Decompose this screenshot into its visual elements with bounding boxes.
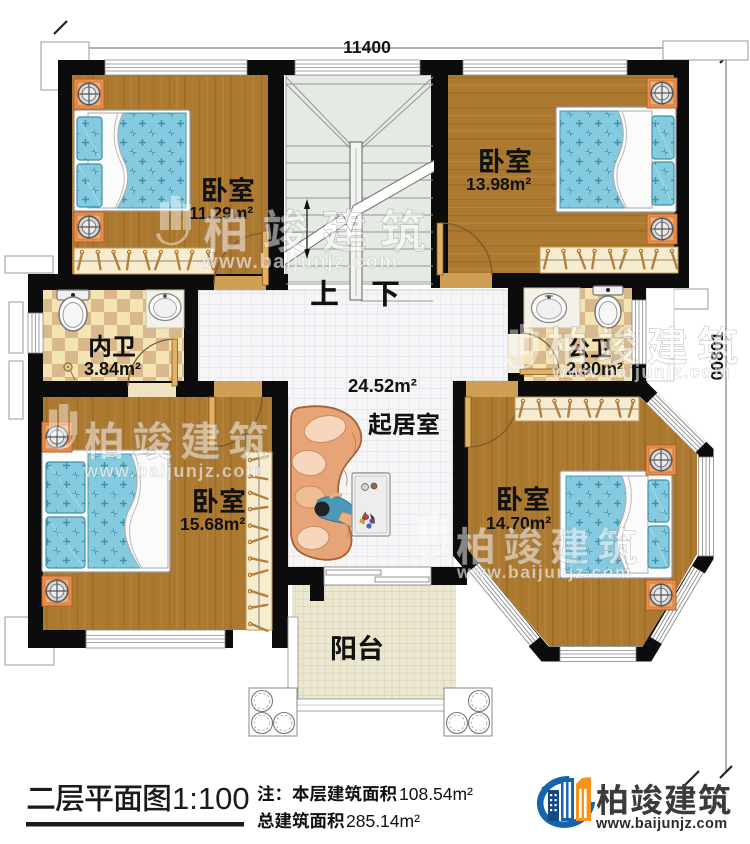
svg-text:www.baijunjz.com: www.baijunjz.com — [595, 816, 728, 832]
svg-text:24.52m²: 24.52m² — [348, 375, 417, 396]
svg-text:15.68m²: 15.68m² — [180, 514, 245, 534]
svg-text:285.14m²: 285.14m² — [346, 811, 420, 831]
svg-text:108.54m²: 108.54m² — [399, 784, 473, 804]
svg-text:www.baijunjz.com: www.baijunjz.com — [551, 362, 731, 382]
svg-text:14.70m²: 14.70m² — [486, 513, 551, 533]
svg-text:www.baijunjz.com: www.baijunjz.com — [456, 562, 632, 582]
svg-text:1:100: 1:100 — [172, 781, 250, 816]
svg-text:11400: 11400 — [343, 37, 391, 57]
svg-text:3.84m²: 3.84m² — [84, 359, 141, 379]
svg-text:www.baijunjz.com: www.baijunjz.com — [83, 461, 263, 481]
svg-text:13.98m²: 13.98m² — [466, 174, 531, 194]
svg-text:www.baijunjz.com: www.baijunjz.com — [201, 251, 399, 273]
